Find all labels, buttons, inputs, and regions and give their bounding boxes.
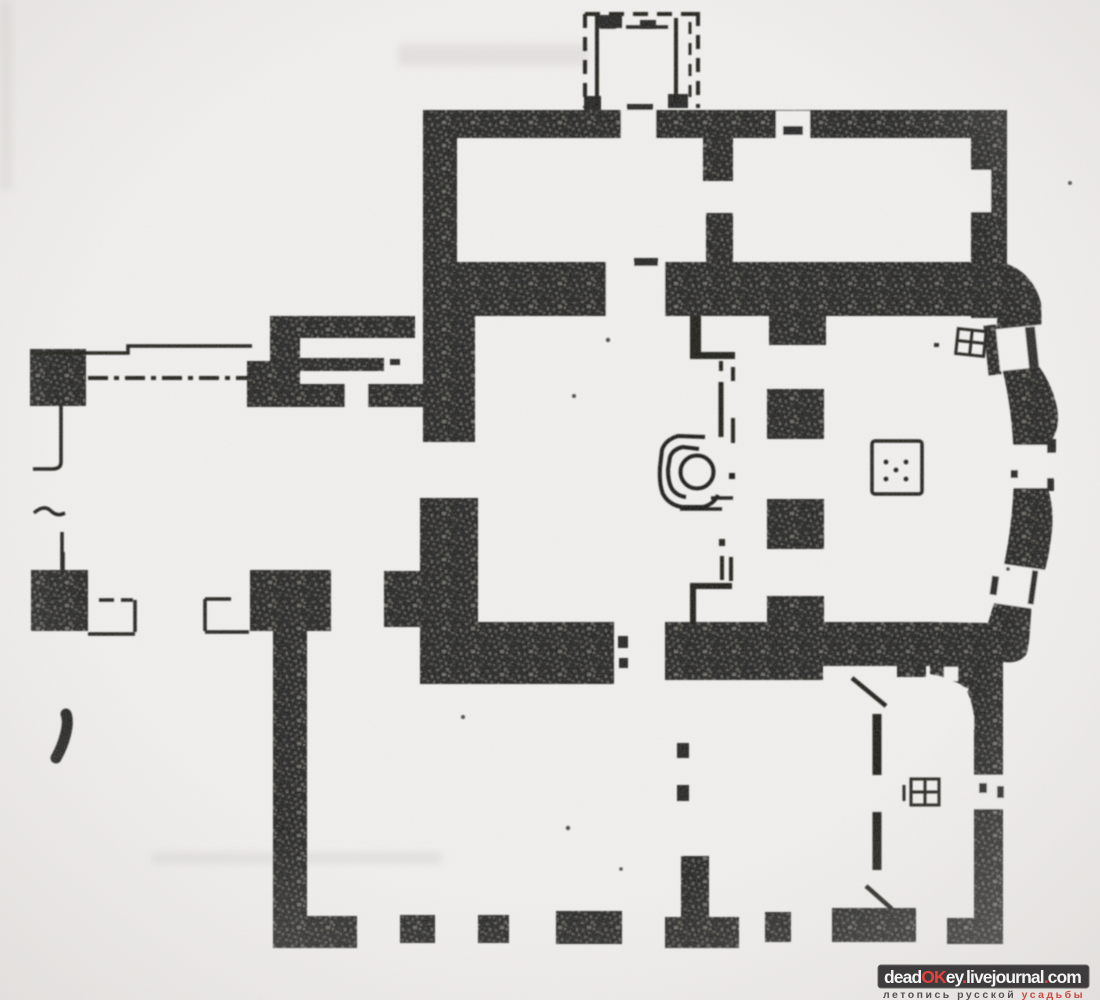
svg-text:deadOKey.livejournal.com: deadOKey.livejournal.com — [884, 967, 1081, 987]
svg-text:летопись русской усадьбы: летопись русской усадьбы — [883, 989, 1085, 1000]
